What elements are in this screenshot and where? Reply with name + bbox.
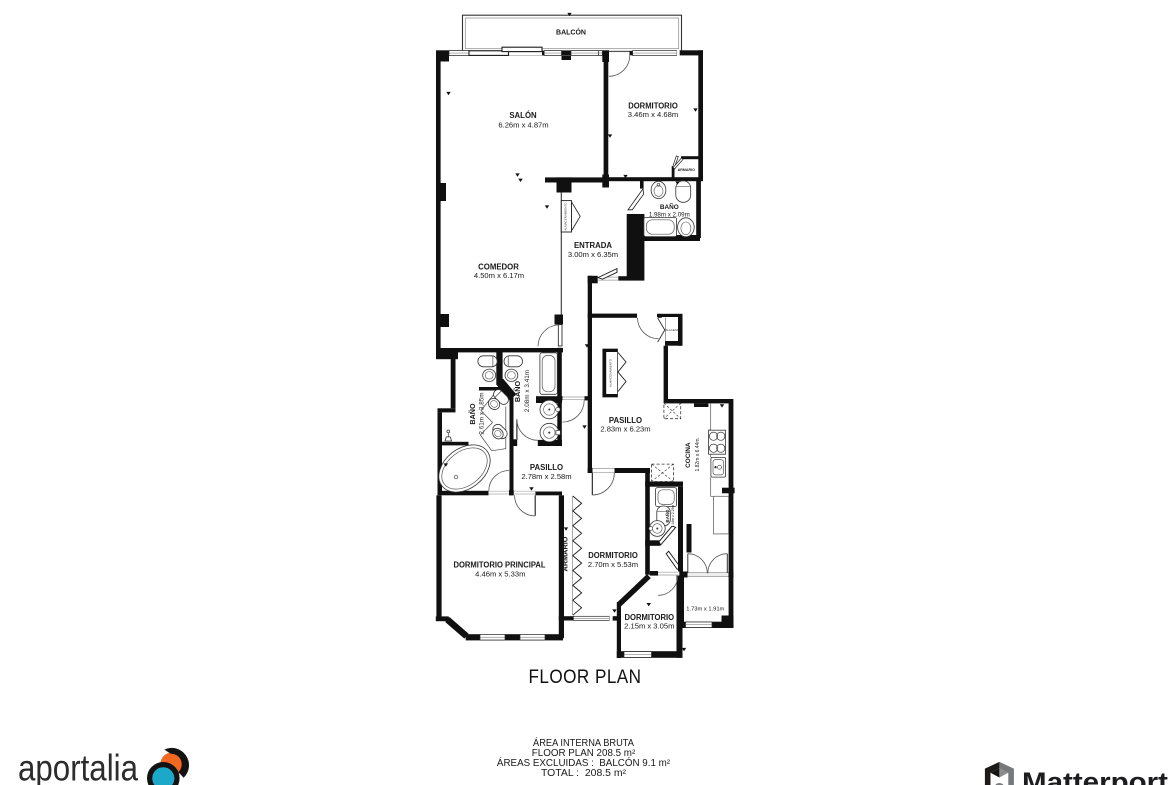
svg-text:ARMARIO: ARMARIO [678,168,695,172]
svg-text:ARMARIO: ARMARIO [560,536,569,571]
svg-text:4.50m x 6.17m: 4.50m x 6.17m [474,271,524,280]
svg-text:BALCÓN: BALCÓN [556,28,586,37]
svg-text:PASILLO: PASILLO [609,416,642,425]
svg-text:COMEDOR: COMEDOR [478,262,519,271]
svg-text:ALMACENAMIENTO: ALMACENAMIENTO [609,358,613,387]
svg-text:2.70m x 5.53m: 2.70m x 5.53m [588,560,638,569]
svg-text:DORMITORIO: DORMITORIO [588,551,638,560]
svg-text:1.73m x 1.91m: 1.73m x 1.91m [686,607,724,613]
svg-text:BAÑO: BAÑO [660,202,679,211]
svg-text:1.98m x 2.09m: 1.98m x 2.09m [649,212,690,219]
svg-text:FLOOR PLAN: FLOOR PLAN [529,666,642,688]
svg-text:PASILLO: PASILLO [530,463,563,472]
svg-text:2.83m x 6.23m: 2.83m x 6.23m [600,425,650,434]
svg-text:TOTAL : 208.5 m²: TOTAL : 208.5 m² [541,768,627,779]
svg-text:3.46m x 4.68m: 3.46m x 4.68m [628,110,678,119]
svg-text:2.61m x 3.85m: 2.61m x 3.85m [479,392,486,434]
svg-text:2.78m x 2.58m: 2.78m x 2.58m [521,472,571,481]
svg-text:6.26m x 4.87m: 6.26m x 4.87m [498,120,548,129]
svg-text:ALMACENAMIENTO: ALMACENAMIENTO [564,202,568,231]
svg-text:BAÑO: BAÑO [665,509,670,523]
svg-text:DORMITORIO PRINCIPAL: DORMITORIO PRINCIPAL [454,560,546,569]
svg-text:SALÓN: SALÓN [509,111,537,120]
svg-text:4.46m x 5.33m: 4.46m x 5.33m [475,569,525,578]
svg-text:1.82m x 6.44m: 1.82m x 6.44m [695,438,701,471]
svg-text:3.00m x 6.35m: 3.00m x 6.35m [568,250,618,259]
svg-text:2.08m x 3.41m: 2.08m x 3.41m [524,370,531,412]
svg-text:ALACENA: ALACENA [665,328,678,332]
svg-text:DORMITORIO: DORMITORIO [625,613,675,622]
svg-text:Matterport: Matterport [1022,767,1168,785]
svg-text:BAÑO: BAÑO [513,381,522,403]
svg-text:2.15m x 3.05m: 2.15m x 3.05m [624,622,674,631]
svg-text:DORMITORIO: DORMITORIO [628,101,678,110]
svg-text:ENTRADA: ENTRADA [574,241,612,250]
svg-text:COCINA: COCINA [685,442,692,468]
svg-text:aportalia: aportalia [18,748,138,785]
svg-text:1.18m x 2.25m: 1.18m x 2.25m [671,505,675,528]
svg-text:BAÑO: BAÑO [468,403,477,425]
